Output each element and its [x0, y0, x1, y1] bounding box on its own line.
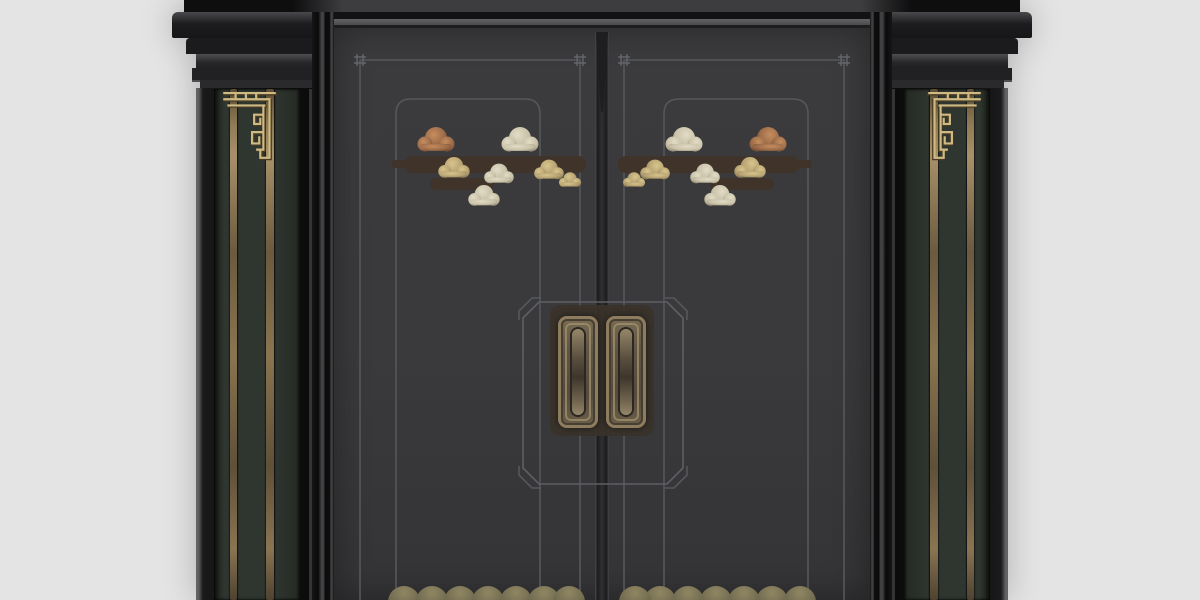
- door-ornament-linework: [334, 28, 870, 600]
- gold-fret-ornament: [220, 90, 280, 164]
- pillar-recessed-panel: [214, 89, 300, 600]
- left-leaf-outline: [360, 60, 580, 600]
- right-pillar: [892, 88, 1008, 600]
- pillar-recessed-panel: [904, 89, 990, 600]
- bottom-scallop-clouds-right: [619, 586, 816, 600]
- capital-moldings: [870, 12, 1034, 88]
- right-door-handle: [606, 316, 646, 428]
- door-unit: [170, 0, 1034, 600]
- cornice-molding: [172, 12, 334, 38]
- screenshot-stage: [0, 0, 1200, 600]
- gold-inlay-line: [230, 89, 237, 600]
- double-door-leaves: [334, 28, 870, 600]
- gold-inlay-line: [967, 89, 974, 600]
- cornice-molding: [870, 38, 1018, 54]
- right-door-jamb: [870, 12, 892, 600]
- cornice-molding: [870, 12, 1032, 38]
- left-door-handle: [558, 316, 598, 428]
- right-leaf-outline: [624, 60, 844, 600]
- gold-fret-ornament: [924, 90, 984, 164]
- left-pillar: [196, 88, 312, 600]
- right-pillar-capital: [870, 12, 1034, 88]
- cloud-motif-right: [618, 127, 812, 206]
- left-pillar-capital: [170, 12, 334, 88]
- gold-inlay-line: [930, 89, 938, 600]
- bottom-scallop-clouds-left: [388, 586, 585, 600]
- capital-moldings: [170, 12, 334, 88]
- door-head-frame: [334, 12, 870, 28]
- cloud-motif-left: [392, 127, 586, 206]
- left-door-jamb: [312, 12, 334, 600]
- gold-inlay-line: [266, 89, 274, 600]
